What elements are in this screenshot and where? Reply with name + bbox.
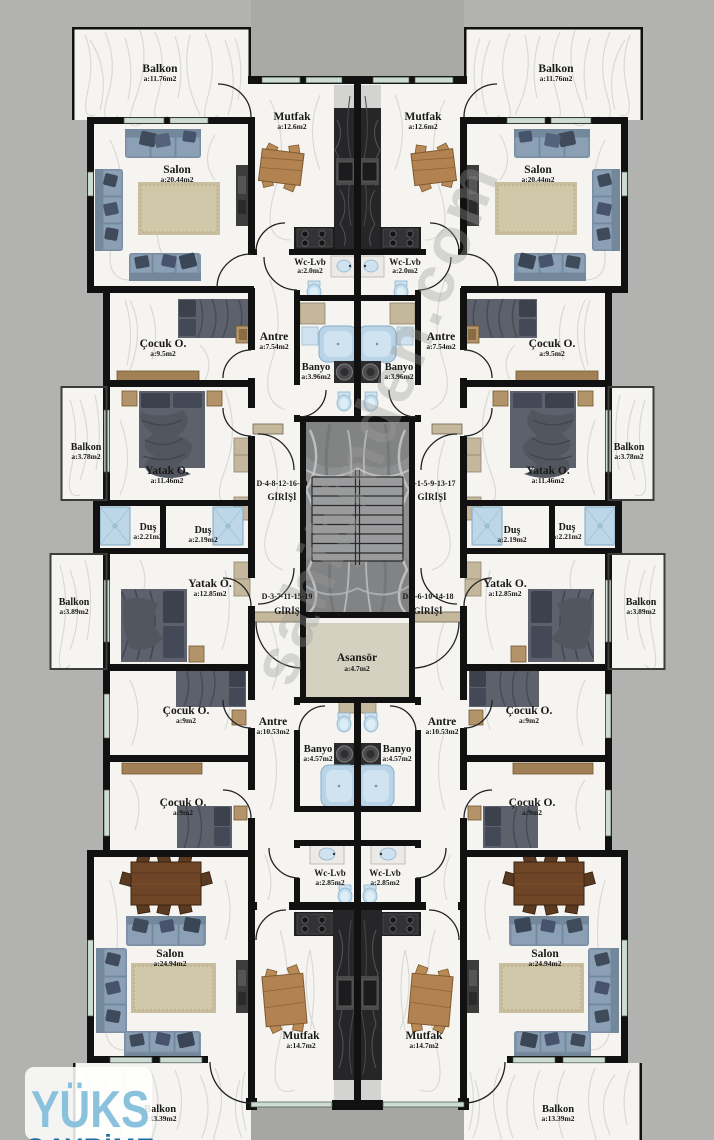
svg-text:a:11.46m2: a:11.46m2 (151, 476, 184, 485)
svg-text:GİRİŞİ: GİRİŞİ (267, 492, 297, 502)
svg-text:a:9m2: a:9m2 (173, 808, 193, 817)
svg-text:a:12.85m2: a:12.85m2 (488, 589, 521, 598)
svg-text:a:12.6m2: a:12.6m2 (277, 122, 307, 131)
svg-text:a:3.89m2: a:3.89m2 (59, 607, 89, 616)
svg-text:GAYRİME: GAYRİME (25, 1133, 156, 1140)
svg-text:YÜKS: YÜKS (31, 1081, 149, 1139)
svg-text:a:4.7m2: a:4.7m2 (344, 664, 370, 673)
svg-text:a:2.0m2: a:2.0m2 (297, 266, 323, 275)
svg-text:a:2.21m2: a:2.21m2 (552, 532, 582, 541)
svg-text:a:14.7m2: a:14.7m2 (409, 1041, 439, 1050)
svg-text:a:3.78m2: a:3.78m2 (614, 452, 644, 461)
svg-text:a:3.78m2: a:3.78m2 (71, 452, 101, 461)
svg-text:D-4-8-12-16-20: D-4-8-12-16-20 (256, 479, 307, 488)
svg-text:a:10.53m2: a:10.53m2 (425, 727, 458, 736)
svg-text:a:2.19m2: a:2.19m2 (497, 535, 527, 544)
svg-text:a:11.76m2: a:11.76m2 (144, 74, 177, 83)
svg-text:a:3.89m2: a:3.89m2 (626, 607, 656, 616)
svg-text:a:12.6m2: a:12.6m2 (408, 122, 438, 131)
svg-text:a:3.96m2: a:3.96m2 (384, 372, 414, 381)
svg-text:a:20.44m2: a:20.44m2 (160, 175, 193, 184)
svg-text:a:2.0m2: a:2.0m2 (392, 266, 418, 275)
svg-text:Wc-Lvb: Wc-Lvb (369, 868, 401, 878)
svg-text:a:9m2: a:9m2 (519, 716, 539, 725)
svg-text:GİRİŞ: GİRİŞ (274, 606, 300, 616)
svg-text:a:9m2: a:9m2 (176, 716, 196, 725)
svg-text:a:11.76m2: a:11.76m2 (540, 74, 573, 83)
svg-text:Asansör: Asansör (337, 652, 377, 664)
svg-text:a:2.85m2: a:2.85m2 (370, 878, 400, 887)
svg-text:GİRİŞİ: GİRİŞİ (413, 606, 443, 616)
svg-text:a:20.44m2: a:20.44m2 (521, 175, 554, 184)
svg-text:a:9.5m2: a:9.5m2 (539, 349, 565, 358)
svg-text:D-1-5-9-13-17: D-1-5-9-13-17 (408, 479, 455, 488)
svg-text:a:10.53m2: a:10.53m2 (256, 727, 289, 736)
svg-text:a:9.5m2: a:9.5m2 (150, 349, 176, 358)
svg-text:a:7.54m2: a:7.54m2 (426, 342, 456, 351)
svg-text:D-2-6-10-14-18: D-2-6-10-14-18 (402, 592, 453, 601)
svg-text:a:13.39m2: a:13.39m2 (541, 1114, 574, 1123)
svg-text:a:3.96m2: a:3.96m2 (301, 372, 331, 381)
svg-text:a:2.21m2: a:2.21m2 (133, 532, 163, 541)
svg-text:D-3-7-11-15-19: D-3-7-11-15-19 (262, 592, 313, 601)
svg-text:a:2.19m2: a:2.19m2 (188, 535, 218, 544)
svg-text:a:24.94m2: a:24.94m2 (153, 959, 186, 968)
svg-text:a:24.94m2: a:24.94m2 (528, 959, 561, 968)
svg-text:a:14.7m2: a:14.7m2 (286, 1041, 316, 1050)
svg-text:a:4.57m2: a:4.57m2 (303, 754, 333, 763)
svg-text:a:9m2: a:9m2 (522, 808, 542, 817)
svg-text:a:7.54m2: a:7.54m2 (259, 342, 289, 351)
svg-text:a:12.85m2: a:12.85m2 (193, 589, 226, 598)
svg-text:a:2.85m2: a:2.85m2 (315, 878, 345, 887)
svg-text:Wc-Lvb: Wc-Lvb (314, 868, 346, 878)
svg-text:a:4.57m2: a:4.57m2 (382, 754, 412, 763)
svg-text:a:11.46m2: a:11.46m2 (532, 476, 565, 485)
svg-text:GİRİŞİ: GİRİŞİ (417, 492, 447, 502)
